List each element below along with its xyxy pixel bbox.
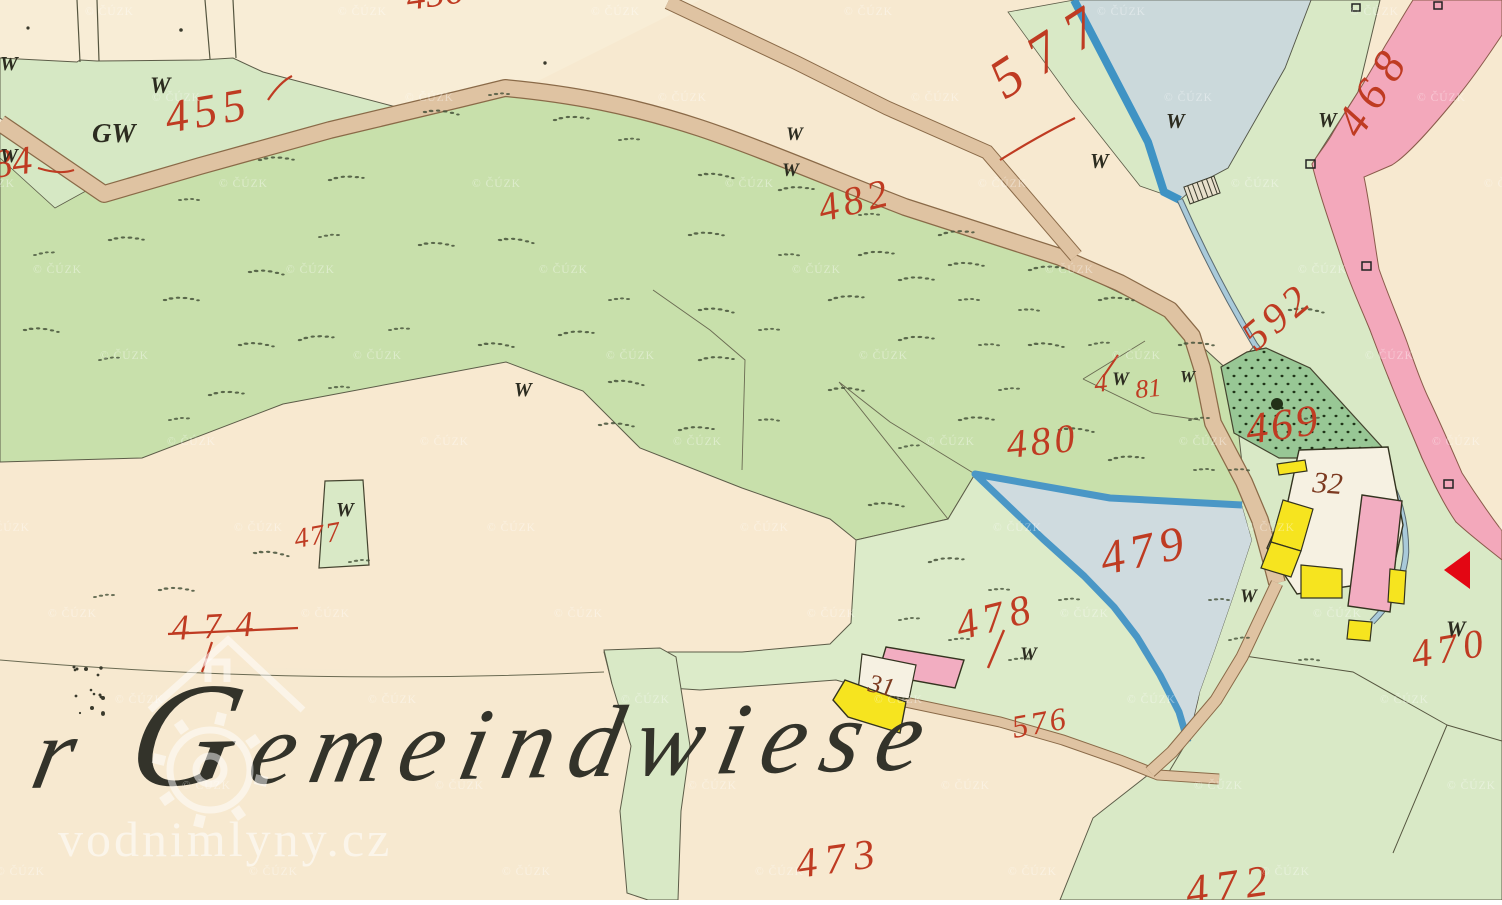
svg-text:© ČÚZK: © ČÚZK [435,778,484,792]
svg-text:© ČÚZK: © ČÚZK [993,520,1042,534]
svg-text:© ČÚZK: © ČÚZK [420,434,469,448]
svg-text:© ČÚZK: © ČÚZK [539,262,588,276]
svg-text:© ČÚZK: © ČÚZK [1231,176,1280,190]
svg-text:© ČÚZK: © ČÚZK [1313,606,1362,620]
svg-text:W: W [1240,586,1258,607]
svg-text:© ČÚZK: © ČÚZK [740,520,789,534]
svg-text:© ČÚZK: © ČÚZK [182,778,231,792]
svg-text:© ČÚZK: © ČÚZK [100,348,149,362]
svg-text:© ČÚZK: © ČÚZK [926,434,975,448]
svg-text:© ČÚZK: © ČÚZK [1246,520,1295,534]
svg-text:W: W [0,145,19,167]
svg-text:© ČÚZK: © ČÚZK [1127,692,1176,706]
svg-text:© ČÚZK: © ČÚZK [472,176,521,190]
svg-text:W: W [1166,109,1186,133]
svg-text:© ČÚZK: © ČÚZK [1447,778,1496,792]
svg-text:W: W [1180,367,1197,386]
svg-text:© ČÚZK: © ČÚZK [688,778,737,792]
svg-text:© ČÚZK: © ČÚZK [1194,778,1243,792]
svg-text:W: W [1112,369,1130,390]
svg-text:W: W [1020,644,1038,665]
svg-text:© ČÚZK: © ČÚZK [606,348,655,362]
svg-text:© ČÚZK: © ČÚZK [807,606,856,620]
svg-text:© ČÚZK: © ČÚZK [234,520,283,534]
svg-text:W: W [782,160,800,181]
svg-text:© ČÚZK: © ČÚZK [658,90,707,104]
svg-text:© ČÚZK: © ČÚZK [755,864,804,878]
svg-text:© ČÚZK: © ČÚZK [725,176,774,190]
svg-text:© ČÚZK: © ČÚZK [1417,90,1466,104]
svg-text:© ČÚZK: © ČÚZK [844,4,893,18]
svg-text:W: W [336,499,355,521]
svg-text:© ČÚZK: © ČÚZK [368,692,417,706]
svg-text:81: 81 [1134,373,1162,404]
svg-text:© ČÚZK: © ČÚZK [874,692,923,706]
svg-text:© ČÚZK: © ČÚZK [978,176,1027,190]
svg-text:© ČÚZK: © ČÚZK [792,262,841,276]
svg-text:© ČÚZK: © ČÚZK [0,176,15,190]
svg-text:© ČÚZK: © ČÚZK [219,176,268,190]
svg-text:474: 474 [170,603,268,648]
svg-text:© ČÚZK: © ČÚZK [405,90,454,104]
svg-text:© ČÚZK: © ČÚZK [1045,262,1094,276]
svg-text:© ČÚZK: © ČÚZK [1164,90,1213,104]
svg-text:W: W [1318,108,1338,132]
svg-text:© ČÚZK: © ČÚZK [1365,348,1414,362]
svg-text:vodnimlyny.cz: vodnimlyny.cz [58,811,392,867]
svg-text:© ČÚZK: © ČÚZK [673,434,722,448]
svg-text:© ČÚZK: © ČÚZK [1097,4,1146,18]
svg-text:© ČÚZK: © ČÚZK [859,348,908,362]
svg-text:© ČÚZK: © ČÚZK [1298,262,1347,276]
svg-text:480: 480 [1004,415,1080,467]
svg-text:© ČÚZK: © ČÚZK [1261,864,1310,878]
svg-text:© ČÚZK: © ČÚZK [301,606,350,620]
svg-text:W: W [514,379,533,401]
svg-text:© ČÚZK: © ČÚZK [338,4,387,18]
svg-text:© ČÚZK: © ČÚZK [33,262,82,276]
svg-text:© ČÚZK: © ČÚZK [0,520,30,534]
svg-text:© ČÚZK: © ČÚZK [554,606,603,620]
svg-text:© ČÚZK: © ČÚZK [353,348,402,362]
svg-text:469: 469 [1243,395,1324,454]
svg-text:© ČÚZK: © ČÚZK [249,864,298,878]
svg-text:W: W [1446,616,1467,641]
svg-text:© ČÚZK: © ČÚZK [0,864,45,878]
svg-text:© ČÚZK: © ČÚZK [1350,4,1399,18]
svg-text:W: W [786,124,804,145]
svg-text:© ČÚZK: © ČÚZK [115,692,164,706]
svg-text:W: W [0,53,19,75]
svg-text:GW: GW [92,118,137,148]
svg-text:© ČÚZK: © ČÚZK [621,692,670,706]
svg-text:© ČÚZK: © ČÚZK [167,434,216,448]
svg-text:© ČÚZK: © ČÚZK [911,90,960,104]
svg-text:W: W [1090,149,1110,173]
svg-text:© ČÚZK: © ČÚZK [85,4,134,18]
svg-text:32: 32 [1311,466,1344,501]
svg-text:© ČÚZK: © ČÚZK [1380,692,1429,706]
svg-text:© ČÚZK: © ČÚZK [941,778,990,792]
svg-text:© ČÚZK: © ČÚZK [502,864,551,878]
svg-text:© ČÚZK: © ČÚZK [1008,864,1057,878]
svg-text:© ČÚZK: © ČÚZK [48,606,97,620]
svg-text:© ČÚZK: © ČÚZK [1484,176,1502,190]
svg-text:© ČÚZK: © ČÚZK [1112,348,1161,362]
svg-text:© ČÚZK: © ČÚZK [152,90,201,104]
svg-text:© ČÚZK: © ČÚZK [1432,434,1481,448]
svg-text:© ČÚZK: © ČÚZK [286,262,335,276]
svg-text:© ČÚZK: © ČÚZK [1060,606,1109,620]
svg-text:© ČÚZK: © ČÚZK [487,520,536,534]
svg-text:© ČÚZK: © ČÚZK [591,4,640,18]
svg-text:© ČÚZK: © ČÚZK [1179,434,1228,448]
